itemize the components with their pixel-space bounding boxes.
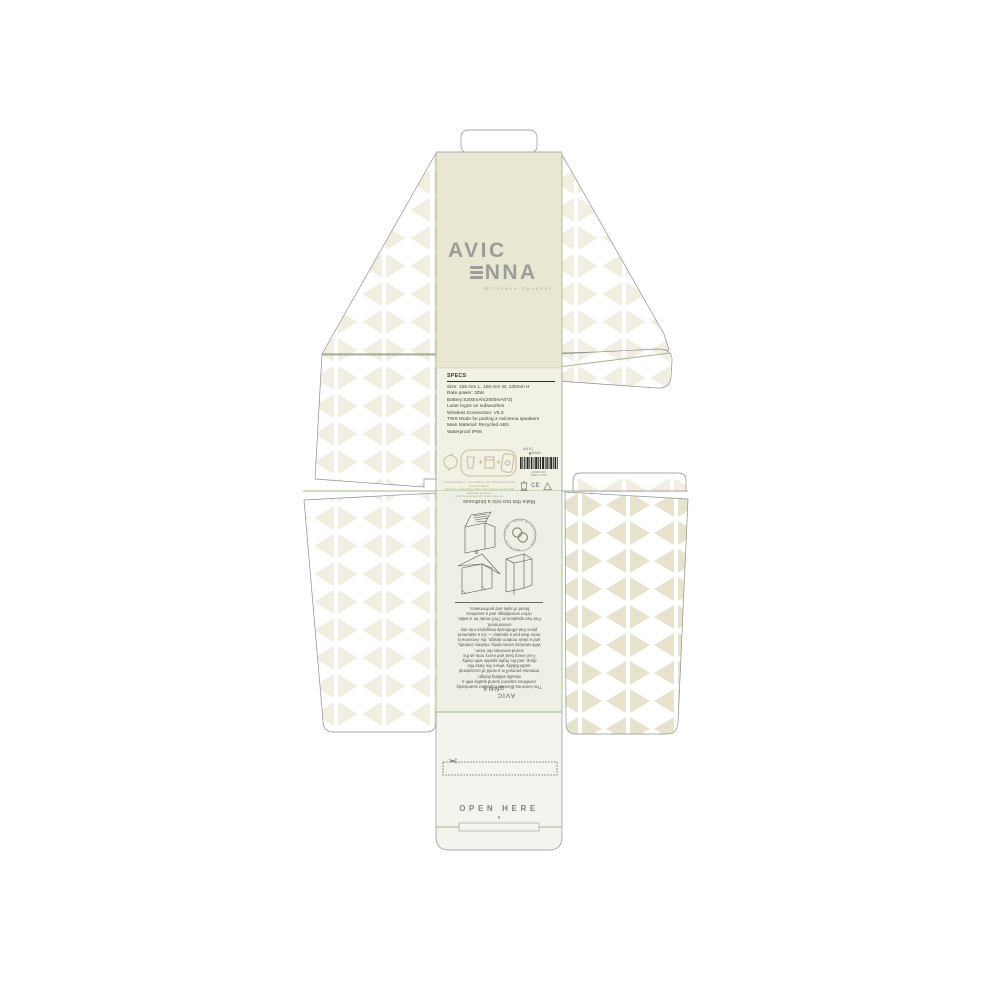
- left-mid-flap: [315, 354, 436, 487]
- stylized-e-icon: [500, 685, 504, 689]
- fine-print-line: Shenzhen, Guangdong, China. This product…: [441, 488, 518, 495]
- barcode-caption-2: Made in PRC: [519, 474, 559, 477]
- paragraph-line: Feel every beat and every note as the: [440, 653, 558, 658]
- paragraph-line: piece that effortlessly integrates into …: [440, 627, 558, 632]
- paragraph-line: sound envelops the room.: [440, 648, 558, 653]
- barcode-captions: AVSPK-001 Made in PRC: [519, 471, 559, 477]
- barcode: [519, 457, 559, 471]
- brand-logo-line2: NNA: [470, 262, 562, 283]
- specs-line: Waterproof IP66: [447, 430, 555, 436]
- reuse-logo-line2: NNA: [482, 684, 504, 691]
- eco-icons-row: [442, 448, 520, 480]
- plus-icon: [497, 460, 501, 464]
- box-illustration-roof: [454, 550, 504, 596]
- reuse-paragraph: The Avicenna Bluetooth Speaker seamlessl…: [440, 606, 558, 689]
- paragraph-line: more than just a speaker — it's a statem…: [440, 632, 558, 637]
- fine-print: Avicenna Audio Co., Ltd. Building 2, No.…: [441, 481, 518, 499]
- brand-tagline: Wireless Speaker: [484, 287, 562, 292]
- lower-right-panel: [565, 492, 688, 734]
- reuse-logo-line2-text: NNA: [482, 684, 499, 691]
- paragraph-line: audio fidelity, where the bass hits: [440, 663, 558, 668]
- brand-logo-line2-text: NNA: [485, 262, 538, 283]
- top-left-flap: [322, 153, 436, 354]
- eco-badge: RECYCLE · REUSE · MADE WITH PURPOSE ·: [502, 517, 538, 553]
- open-here-arrow-icon: ▾: [436, 816, 562, 820]
- cup-icon: [467, 457, 474, 468]
- mini-logo-line2-text: NNA: [532, 452, 542, 456]
- weee-bin-icon: [520, 481, 528, 491]
- pull-tab-outline: [459, 823, 539, 831]
- right-tuck-flap: [573, 473, 686, 491]
- certification-marks: CE: [520, 481, 562, 491]
- scissors-icon: ✂: [448, 755, 457, 768]
- ce-mark: CE: [531, 483, 540, 489]
- reuse-panel-logo: AVIC NNA: [436, 684, 562, 698]
- specs-heading: SPECS: [447, 373, 555, 382]
- top-right-flap: [561, 153, 669, 353]
- reuse-logo-line1: AVIC: [497, 691, 516, 698]
- box-illustration-open-lid: [455, 509, 503, 555]
- paragraph-line: environment.: [440, 622, 558, 627]
- paragraph-line: deep, and the highs sparkle with clarity…: [440, 658, 558, 663]
- tag-icon: [501, 453, 514, 472]
- paragraph-line: Pair two speakers in TWS mode for a wide…: [440, 616, 558, 621]
- stylized-e-icon: [470, 266, 483, 279]
- box-illustration-closed: [502, 550, 536, 596]
- bin-icon: [485, 457, 494, 468]
- barcode-mini-logo: AVIC NNA: [523, 448, 557, 456]
- infinity-loop-icon: [513, 528, 528, 542]
- svg-text:RECYCLE · REUSE · MADE WITH PU: RECYCLE · REUSE · MADE WITH PURPOSE ·: [503, 518, 537, 552]
- lower-left-panel: [304, 493, 436, 732]
- packaging-dieline-canvas: AVIC NNA Wireless Speaker SPECS Size: 10…: [0, 0, 1000, 1000]
- paragraph-line: Immerse yourself in a world of exception…: [440, 668, 558, 673]
- specs-block: SPECS Size: 105 mm L, 105 mm W, 130mm HR…: [447, 373, 555, 436]
- plus-icon: [479, 460, 483, 464]
- brand-logo: AVIC NNA Wireless Speaker: [436, 240, 562, 292]
- badge-rim-text: RECYCLE · REUSE · MADE WITH PURPOSE ·: [503, 518, 537, 552]
- divider-rule: [455, 602, 543, 603]
- reuse-title: Make this box into a birdhouse: [436, 498, 562, 504]
- recycle-triangle-icon: [543, 482, 552, 491]
- paragraph-line: blend of style and performance.: [440, 606, 558, 611]
- specs-lines: Size: 105 mm L, 105 mm W, 130mm HRate po…: [447, 385, 555, 436]
- open-here-label: OPEN HERE: [436, 804, 562, 813]
- paragraph-line: visually striking design.: [440, 674, 558, 679]
- recycle-loop-icon: [444, 456, 457, 469]
- paragraph-line: With wireless connectivity, intuitive co…: [440, 642, 558, 647]
- brand-logo-line1: AVIC: [448, 240, 562, 261]
- tag-dot-icon: [505, 461, 509, 465]
- mini-logo-line2: NNA: [529, 452, 557, 456]
- fine-print-line: Avicenna Audio Co., Ltd. Building 2, No.…: [441, 481, 518, 488]
- top-lock-tab: [461, 130, 537, 153]
